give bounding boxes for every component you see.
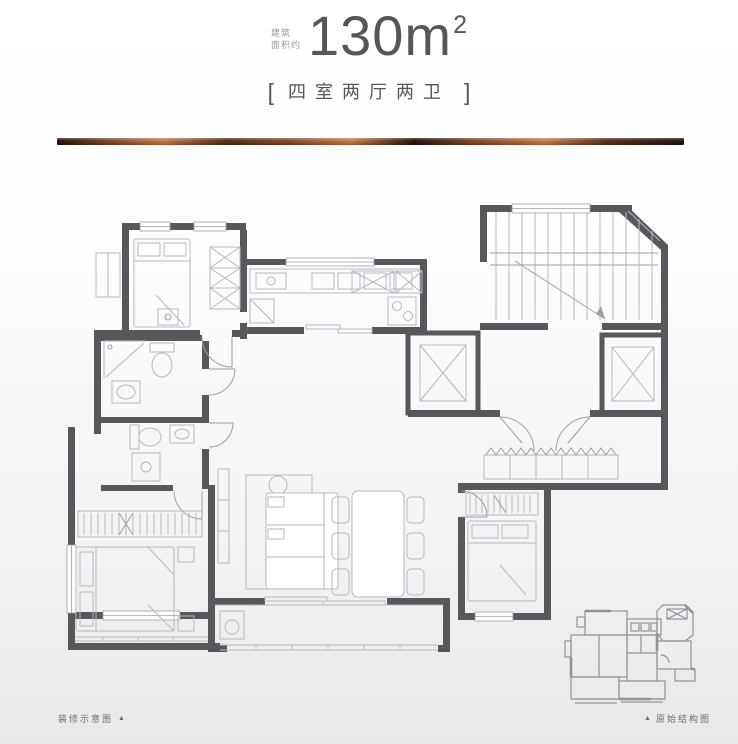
stairwell <box>490 211 660 320</box>
triangle-up-icon: ▲ <box>644 715 651 722</box>
bracket-open: [ <box>268 79 274 105</box>
mini-original-structure-plan <box>555 595 733 707</box>
elevator-shafts <box>352 271 664 413</box>
entry-foyer <box>484 417 618 479</box>
balconies <box>75 597 443 650</box>
dining-room <box>332 491 424 597</box>
door-arcs <box>174 337 487 519</box>
footer-right-text: 原始结构图 <box>656 712 711 725</box>
area-note-line1: 建筑 <box>271 27 301 39</box>
page-title: 建筑 面积约 130m 2 <box>0 8 738 64</box>
layout-text: 四室两厅两卫 <box>288 82 450 102</box>
living-room <box>218 469 338 589</box>
bedroom-right <box>466 493 538 601</box>
triangle-up-icon: ▲ <box>118 715 125 722</box>
footer-right-label: ▲ 原始结构图 <box>644 712 711 725</box>
copper-divider-bar <box>57 138 684 145</box>
bedroom-top-left <box>96 239 240 327</box>
floorplan-page: 建筑 面积约 130m 2 [ 四室两厅两卫 ] <box>0 0 738 744</box>
area-value: 130m <box>308 8 452 64</box>
layout-label: [ 四室两厅两卫 ] <box>0 78 738 106</box>
footer-left-text: 装修示意图 <box>58 712 113 725</box>
bracket-close: ] <box>464 79 470 105</box>
bathroom-2 <box>130 425 194 481</box>
area-superscript: 2 <box>453 11 467 40</box>
bathroom-1 <box>104 341 174 403</box>
area-note: 建筑 面积约 <box>271 27 301 51</box>
area-note-line2: 面积约 <box>271 39 301 51</box>
mini-plan-lines <box>565 605 695 703</box>
footer-left-label: 装修示意图 ▲ <box>58 712 125 725</box>
